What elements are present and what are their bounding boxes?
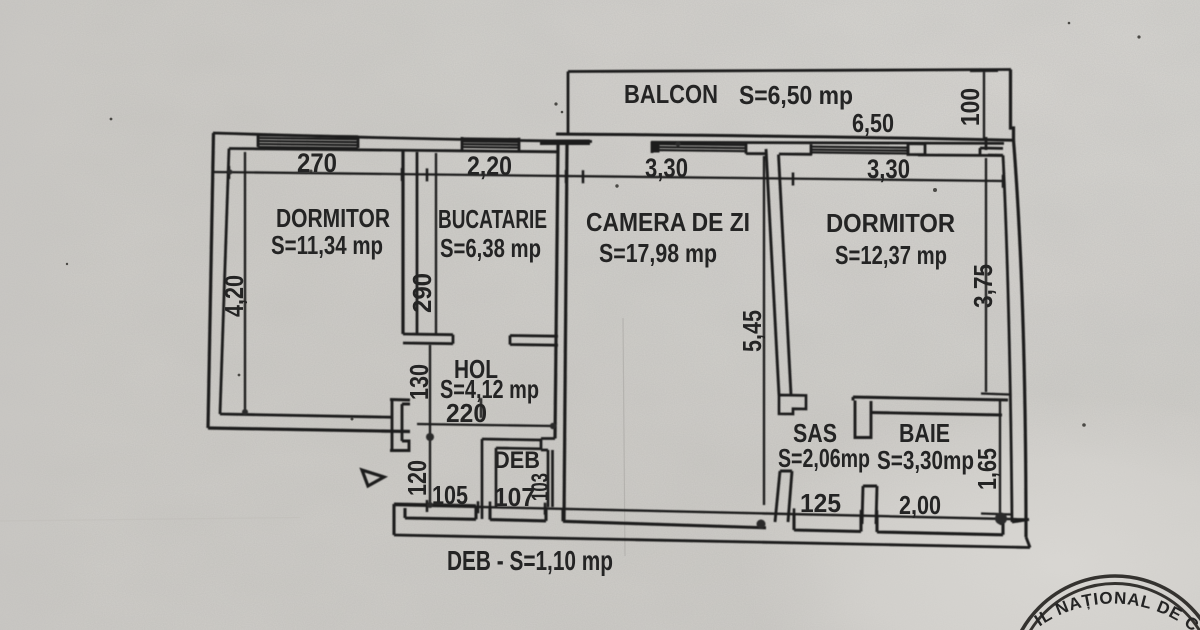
svg-text:4,20: 4,20 — [219, 275, 249, 317]
svg-text:3,30: 3,30 — [645, 153, 688, 183]
svg-text:2,20: 2,20 — [467, 151, 512, 181]
svg-text:BAIE: BAIE — [899, 418, 950, 448]
svg-text:S=2,06mp: S=2,06mp — [778, 443, 870, 473]
svg-text:2,00: 2,00 — [899, 490, 941, 520]
svg-text:130: 130 — [404, 364, 434, 400]
svg-text:290: 290 — [407, 273, 437, 313]
svg-text:S=17,98 mp: S=17,98 mp — [599, 238, 717, 268]
svg-text:1,65: 1,65 — [972, 448, 1002, 490]
svg-text:S=6,38 mp: S=6,38 mp — [440, 233, 541, 263]
svg-text:3,30: 3,30 — [867, 154, 910, 184]
svg-text:S=3,30mp: S=3,30mp — [877, 445, 974, 475]
svg-text:100: 100 — [955, 88, 985, 126]
svg-text:3,75: 3,75 — [968, 264, 998, 308]
svg-text:DEB - S=1,10 mp: DEB - S=1,10 mp — [447, 545, 613, 576]
svg-text:105: 105 — [432, 480, 468, 510]
svg-text:CAMERA DE ZI: CAMERA DE ZI — [586, 207, 750, 237]
svg-text:270: 270 — [297, 148, 337, 178]
svg-text:S=12,37 mp: S=12,37 mp — [835, 240, 947, 270]
svg-text:DEB: DEB — [494, 447, 540, 474]
svg-text:S=11,34 mp: S=11,34 mp — [271, 230, 383, 260]
svg-text:120: 120 — [402, 460, 432, 496]
svg-text:5,45: 5,45 — [737, 310, 767, 352]
svg-text:BALCON: BALCON — [624, 79, 718, 109]
svg-text:BUCATARIE: BUCATARIE — [438, 204, 547, 234]
svg-text:S=6,50 mp: S=6,50 mp — [739, 80, 853, 110]
svg-text:125: 125 — [800, 488, 841, 518]
svg-text:6,50: 6,50 — [852, 108, 894, 138]
svg-text:103: 103 — [527, 473, 554, 501]
svg-text:DORMITOR: DORMITOR — [826, 208, 955, 238]
svg-text:DORMITOR: DORMITOR — [276, 203, 390, 233]
svg-text:220: 220 — [446, 398, 487, 428]
